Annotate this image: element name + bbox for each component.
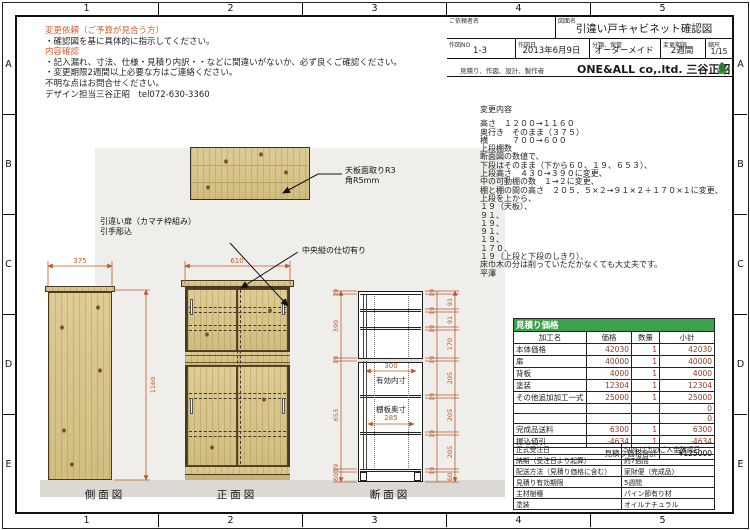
section-view-label: 断面図 bbox=[355, 487, 425, 502]
dim-sec-left: 60 bbox=[332, 459, 340, 495]
dim-sec-left: 19 bbox=[332, 342, 340, 378]
estimate-row: その他追加加工一式 25000 1 25000 bbox=[514, 392, 715, 404]
item-price: 40000 bbox=[587, 356, 632, 368]
info-label: 主材樹種 bbox=[514, 488, 622, 499]
item-qty: 1 bbox=[632, 356, 660, 368]
item-subtotal: 0 bbox=[660, 414, 715, 424]
estimate-header: 加工名 bbox=[514, 332, 587, 344]
info-label: 正式受注日 bbox=[514, 444, 622, 455]
info-label: 配送方法（見積り価格に含む） bbox=[514, 466, 622, 477]
item-name bbox=[514, 404, 587, 414]
dim-side-width: 375 bbox=[58, 257, 102, 265]
dim-sec-right-thin: 19 bbox=[428, 453, 436, 489]
dim-sec-right-span: 205 bbox=[446, 360, 454, 396]
info-row: 主材樹種 パイン節有り材 bbox=[514, 488, 715, 499]
dim-inner-depth: 300 bbox=[369, 362, 413, 370]
info-row: 塗装 オイルナチュラル bbox=[514, 499, 715, 510]
info-label: 納期（受注日より起算） bbox=[514, 455, 622, 466]
estimate-row: 塗装 12304 1 12304 bbox=[514, 380, 715, 392]
item-subtotal: 6300 bbox=[660, 424, 715, 436]
dim-sec-left: 390 bbox=[332, 308, 340, 344]
dim-sec-right-thin: 19 bbox=[428, 342, 436, 378]
dim-sec-left: 653 bbox=[332, 397, 340, 433]
info-row: 配送方法（見積り価格に含む） 家財便（完成品） bbox=[514, 466, 715, 477]
item-price: 12304 bbox=[587, 380, 632, 392]
item-name: 扉 bbox=[514, 356, 587, 368]
item-subtotal: 0 bbox=[660, 404, 715, 414]
estimate-header-row: 加工名 価格 数量 小計 bbox=[514, 332, 715, 344]
item-price bbox=[587, 414, 632, 424]
callout-top-panel: 天板面取りR3 角R5mm bbox=[345, 166, 396, 185]
estimate-row: 背板 4000 1 4000 bbox=[514, 368, 715, 380]
item-qty: 1 bbox=[632, 368, 660, 380]
estimate-row: 本体価格 42030 1 42030 bbox=[514, 344, 715, 356]
estimate-row: 完成品送料 6300 1 6300 bbox=[514, 424, 715, 436]
item-price bbox=[587, 404, 632, 414]
item-qty: 1 bbox=[632, 380, 660, 392]
estimate-header: 数量 bbox=[632, 332, 660, 344]
drawing-sheet: 1 2 3 4 5 1 2 3 4 5 A B C D E A B C D E … bbox=[0, 0, 750, 530]
estimate-title: 見積り価格 bbox=[514, 319, 715, 332]
item-subtotal: 12304 bbox=[660, 380, 715, 392]
dim-sec-right-span: 170 bbox=[446, 326, 454, 362]
dim-sec-right-span: 60 bbox=[446, 459, 454, 495]
item-price: 6300 bbox=[587, 424, 632, 436]
callout-top-panel-line2: 角R5mm bbox=[345, 176, 396, 186]
item-name: その他追加加工一式 bbox=[514, 392, 587, 404]
info-row: 正式受注日 50%以上のご入金確認日 bbox=[514, 444, 715, 455]
callout-sliding-door: 引違い扉（カマチ枠組み） 引手彫込 bbox=[100, 217, 196, 236]
item-name bbox=[514, 414, 587, 424]
estimate-row: 0 bbox=[514, 404, 715, 414]
callout-sliding-door-line2: 引手彫込 bbox=[100, 227, 196, 237]
dim-sec-right-thin: 19 bbox=[428, 379, 436, 415]
callout-center-divider: 中央縦の仕切有り bbox=[302, 246, 366, 256]
item-subtotal: 4000 bbox=[660, 368, 715, 380]
info-value: 約7週間 bbox=[622, 455, 715, 466]
item-qty: 1 bbox=[632, 424, 660, 436]
item-price: 25000 bbox=[587, 392, 632, 404]
info-label: 見積り有効期限 bbox=[514, 477, 622, 488]
estimate-row: 0 bbox=[514, 414, 715, 424]
dim-sec-right-span: 205 bbox=[446, 397, 454, 433]
item-subtotal: 40000 bbox=[660, 356, 715, 368]
dim-sec-left: 19 bbox=[332, 275, 340, 311]
item-price: 42030 bbox=[587, 344, 632, 356]
item-price: 4000 bbox=[587, 368, 632, 380]
info-value: 50%以上のご入金確認日 bbox=[622, 444, 715, 455]
info-value: パイン節有り材 bbox=[622, 488, 715, 499]
item-qty bbox=[632, 404, 660, 414]
estimate-header: 小計 bbox=[660, 332, 715, 344]
dim-shelf-depth: 285 bbox=[369, 414, 413, 422]
info-row: 見積り有効期限 5週間 bbox=[514, 477, 715, 488]
info-value: 5週間 bbox=[622, 477, 715, 488]
item-qty: 1 bbox=[632, 392, 660, 404]
estimate-row: 扉 40000 1 40000 bbox=[514, 356, 715, 368]
item-name: 完成品送料 bbox=[514, 424, 587, 436]
item-qty bbox=[632, 414, 660, 424]
dim-front-width: 610 bbox=[215, 257, 259, 265]
item-subtotal: 25000 bbox=[660, 392, 715, 404]
item-qty: 1 bbox=[632, 344, 660, 356]
item-name: 背板 bbox=[514, 368, 587, 380]
info-value: 家財便（完成品） bbox=[622, 466, 715, 477]
info-value: オイルナチュラル bbox=[622, 499, 715, 510]
side-view-label: 側面図 bbox=[70, 487, 140, 502]
callout-top-panel-line1: 天板面取りR3 bbox=[345, 166, 396, 176]
item-subtotal: 42030 bbox=[660, 344, 715, 356]
inner-depth-label: 有効内寸 bbox=[361, 375, 421, 386]
info-label: 塗装 bbox=[514, 499, 622, 510]
dim-sec-right-thin: 19 bbox=[428, 416, 436, 452]
dim-side-height: 1160 bbox=[149, 367, 157, 403]
info-row: 納期（受注日より起算） 約7週間 bbox=[514, 455, 715, 466]
callout-sliding-door-line1: 引違い扉（カマチ枠組み） bbox=[100, 217, 196, 227]
front-view-label: 正面図 bbox=[202, 487, 272, 502]
estimate-header: 価格 bbox=[587, 332, 632, 344]
item-name: 本体価格 bbox=[514, 344, 587, 356]
item-name: 塗装 bbox=[514, 380, 587, 392]
estimate-table: 見積り価格 加工名 価格 数量 小計 本体価格 42030 1 42030 扉 … bbox=[513, 318, 715, 460]
order-info-table: 正式受注日 50%以上のご入金確認日 納期（受注日より起算） 約7週間 配送方法… bbox=[513, 443, 715, 510]
